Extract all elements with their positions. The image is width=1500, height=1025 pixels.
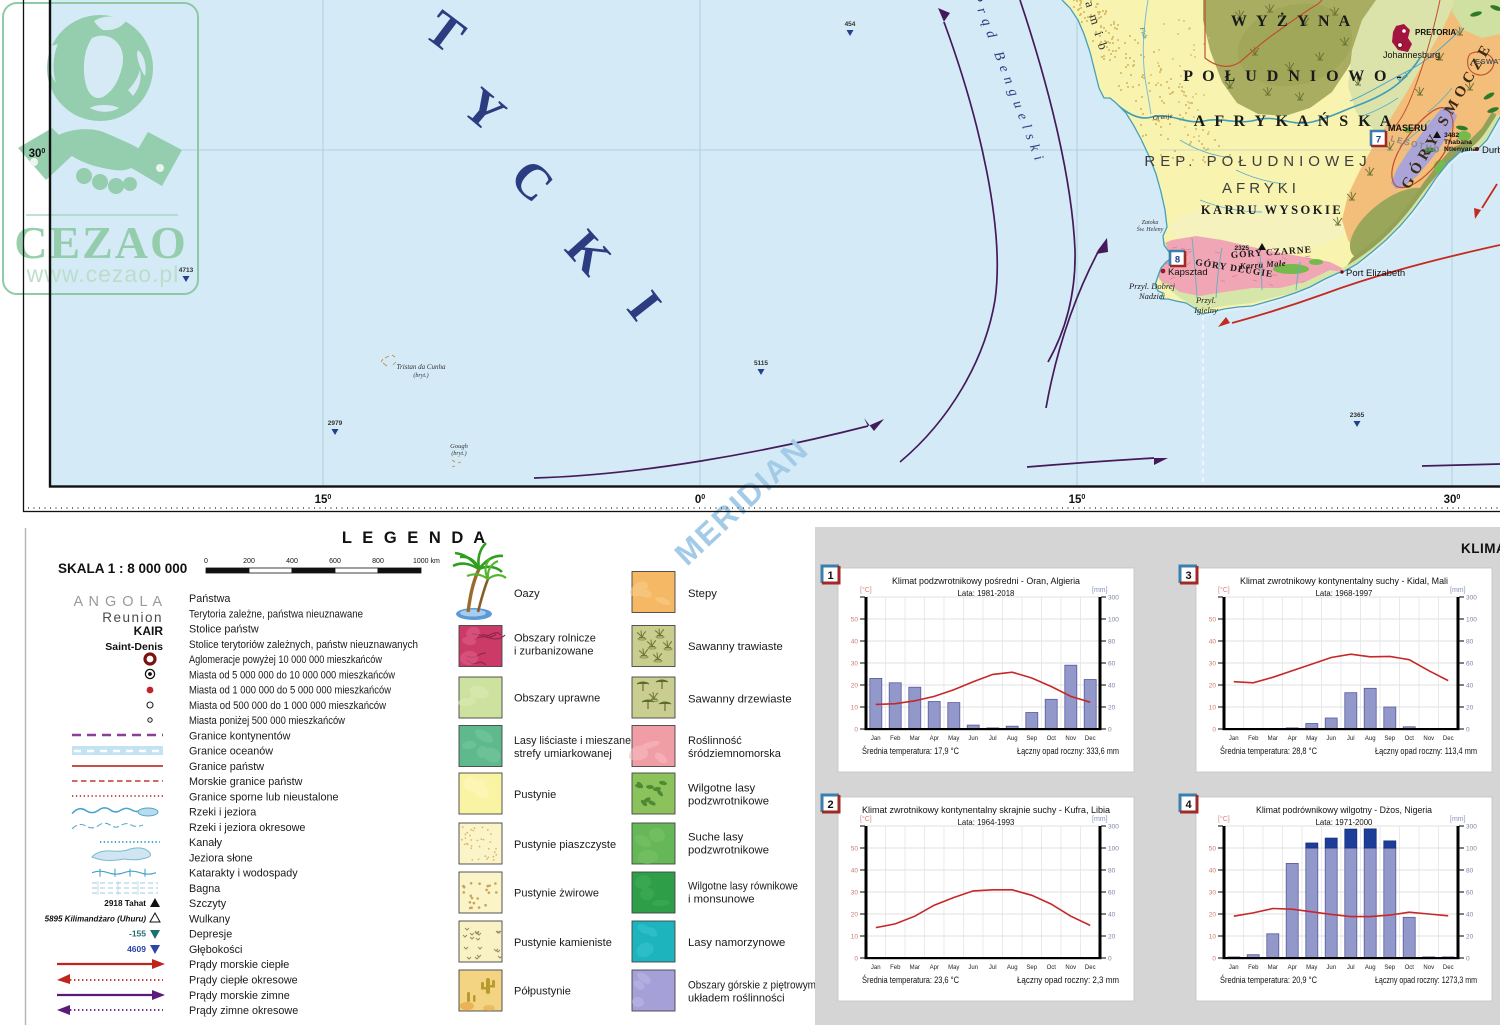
svg-text:Granice sporne lub nieustalone: Granice sporne lub nieustalone: [189, 791, 338, 803]
svg-text:Kapsztad: Kapsztad: [1168, 267, 1208, 278]
svg-text:Mar: Mar: [1268, 965, 1278, 971]
svg-text:0: 0: [854, 956, 858, 963]
svg-text:Rzeki i jeziora okresowe: Rzeki i jeziora okresowe: [189, 822, 305, 834]
svg-text:30: 30: [851, 661, 859, 668]
svg-text:60: 60: [1108, 890, 1116, 897]
svg-text:Obszary górskie z piętrowym: Obszary górskie z piętrowym: [688, 980, 816, 992]
svg-text:100: 100: [1466, 617, 1477, 624]
svg-text:May: May: [948, 736, 959, 742]
svg-text:Johannesburg: Johannesburg: [1383, 50, 1440, 60]
svg-text:Łączny opad roczny: 113,4 mm: Łączny opad roczny: 113,4 mm: [1375, 746, 1477, 756]
svg-text:SKALA 1 : 8 000 000: SKALA 1 : 8 000 000: [58, 561, 187, 576]
svg-text:4: 4: [1185, 799, 1192, 811]
svg-text:Średnia temperatura: 20,9 °C: Średnia temperatura: 20,9 °C: [1220, 974, 1317, 985]
svg-text:50: 50: [851, 846, 859, 853]
svg-text:Roślinność: Roślinność: [688, 735, 742, 747]
svg-text:Sawanny trawiaste: Sawanny trawiaste: [688, 641, 783, 653]
svg-text:300: 300: [1466, 824, 1477, 831]
svg-text:Klimat podzwrotnikowy pośredni: Klimat podzwrotnikowy pośredni - Oran, A…: [892, 576, 1081, 586]
svg-text:Granice kontynentów: Granice kontynentów: [189, 730, 291, 742]
svg-text:300: 300: [1108, 824, 1119, 831]
svg-text:Prądy morskie ciepłe: Prądy morskie ciepłe: [189, 959, 289, 971]
svg-text:454: 454: [845, 21, 856, 28]
svg-text:Zatoka: Zatoka: [1142, 220, 1159, 226]
svg-text:[°C]: [°C]: [1218, 586, 1230, 594]
svg-text:Klimat zwrotnikowy kontynental: Klimat zwrotnikowy kontynentalny suchy -…: [1240, 576, 1448, 586]
svg-text:Łączny opad roczny: 2,3 mm: Łączny opad roczny: 2,3 mm: [1017, 975, 1119, 985]
svg-text:Sep: Sep: [1026, 965, 1037, 971]
svg-text:Katarakty i wodospady: Katarakty i wodospady: [189, 868, 298, 880]
svg-text:Sep: Sep: [1384, 965, 1395, 971]
svg-text:Jul: Jul: [1347, 736, 1355, 742]
svg-text:Św. Heleny: Św. Heleny: [1137, 225, 1164, 233]
svg-text:Sep: Sep: [1026, 736, 1037, 742]
svg-text:-155: -155: [129, 929, 146, 939]
svg-text:Stolice terytoriów zależnych,: Stolice terytoriów zależnych, państw nie…: [189, 639, 418, 651]
svg-text:Miasta od 1 000 000 do 5 000 0: Miasta od 1 000 000 do 5 000 000 mieszka…: [189, 685, 391, 697]
svg-text:20: 20: [1466, 705, 1474, 712]
svg-text:[mm]: [mm]: [1092, 816, 1108, 823]
svg-text:20: 20: [851, 912, 859, 919]
svg-text:[mm]: [mm]: [1450, 816, 1466, 823]
svg-text:80: 80: [1466, 868, 1474, 875]
svg-text:Nov: Nov: [1423, 965, 1434, 971]
svg-text:4609: 4609: [127, 944, 146, 954]
svg-text:0: 0: [1466, 727, 1470, 734]
svg-text:300: 300: [1466, 595, 1477, 602]
svg-text:800: 800: [372, 558, 384, 565]
svg-text:20: 20: [851, 683, 859, 690]
svg-text:Średnia temperatura: 23,6 °C: Średnia temperatura: 23,6 °C: [862, 974, 959, 985]
svg-text:Oct: Oct: [1405, 965, 1415, 971]
svg-text:Mar: Mar: [910, 736, 920, 742]
svg-text:20: 20: [1108, 705, 1116, 712]
svg-text:Półpustynie: Półpustynie: [514, 986, 571, 998]
svg-text:40: 40: [851, 639, 859, 646]
svg-text:May: May: [1306, 736, 1317, 742]
svg-text:i monsunowe: i monsunowe: [688, 894, 755, 906]
svg-text:Stepy: Stepy: [688, 588, 717, 600]
svg-text:KARRU WYSOKIE: KARRU WYSOKIE: [1201, 203, 1343, 217]
svg-text:Aug: Aug: [1365, 736, 1376, 742]
svg-text:podzwrotnikowe: podzwrotnikowe: [688, 845, 769, 857]
svg-text:MASERU: MASERU: [1388, 123, 1427, 133]
svg-text:Rzeki i jeziora: Rzeki i jeziora: [189, 807, 256, 819]
svg-text:Przyl. Dobrej: Przyl. Dobrej: [1128, 281, 1176, 291]
svg-text:Aglomeracje powyżej 10 000 000: Aglomeracje powyżej 10 000 000 mieszkańc…: [189, 654, 382, 666]
svg-text:[°C]: [°C]: [1218, 815, 1230, 823]
svg-text:10: 10: [851, 705, 859, 712]
svg-text:AFRYKI: AFRYKI: [1222, 180, 1300, 197]
svg-text:Tristan da Cunha: Tristan da Cunha: [396, 363, 446, 371]
svg-text:4713: 4713: [179, 267, 194, 274]
svg-text:(bryt.): (bryt.): [451, 450, 466, 457]
svg-text:Aug: Aug: [1007, 736, 1018, 742]
svg-text:300: 300: [1108, 595, 1119, 602]
svg-text:KLIMATOGRAMY: KLIMATOGRAMY: [1461, 541, 1500, 556]
svg-text:Morskie granice państw: Morskie granice państw: [189, 776, 303, 788]
svg-text:Jun: Jun: [1326, 965, 1336, 971]
svg-text:7: 7: [1376, 135, 1381, 146]
svg-text:Dec: Dec: [1085, 965, 1096, 971]
svg-text:Durban: Durban: [1482, 145, 1500, 156]
svg-text:2325: 2325: [1235, 245, 1250, 252]
svg-text:Saint-Denis: Saint-Denis: [105, 641, 163, 653]
svg-text:Nov: Nov: [1065, 736, 1076, 742]
svg-text:0: 0: [1108, 956, 1112, 963]
svg-text:8: 8: [1175, 255, 1180, 266]
svg-text:Jul: Jul: [989, 965, 997, 971]
svg-text:Apr: Apr: [1288, 965, 1297, 971]
svg-text:Sep: Sep: [1384, 736, 1395, 742]
svg-text:Feb: Feb: [890, 736, 901, 742]
svg-text:3482: 3482: [1444, 132, 1459, 139]
svg-text:Nov: Nov: [1065, 965, 1076, 971]
svg-text:L E G E N D A: L E G E N D A: [342, 529, 488, 547]
svg-text:Reunion: Reunion: [102, 610, 163, 625]
svg-text:5115: 5115: [754, 360, 768, 367]
svg-text:20: 20: [1209, 683, 1217, 690]
svg-text:Mar: Mar: [910, 965, 920, 971]
svg-text:Lasy namorzynowe: Lasy namorzynowe: [688, 937, 785, 949]
svg-text:REP. POŁUDNIOWEJ: REP. POŁUDNIOWEJ: [1144, 153, 1371, 170]
svg-text:Sawanny drzewiaste: Sawanny drzewiaste: [688, 694, 792, 706]
svg-text:50: 50: [1209, 617, 1217, 624]
svg-text:PRETORIA: PRETORIA: [1415, 28, 1456, 37]
svg-text:www.cezao.pl: www.cezao.pl: [26, 261, 180, 287]
svg-text:Wilgotne lasy równikowe: Wilgotne lasy równikowe: [688, 881, 798, 893]
svg-text:Szczyty: Szczyty: [189, 898, 227, 910]
svg-text:Państwa: Państwa: [189, 593, 230, 605]
svg-text:Dec: Dec: [1443, 965, 1454, 971]
svg-text:2979: 2979: [328, 420, 343, 427]
svg-text:100: 100: [1466, 846, 1477, 853]
svg-text:Lasy liściaste i mieszane: Lasy liściaste i mieszane: [514, 735, 631, 747]
svg-text:3: 3: [1185, 570, 1191, 582]
svg-text:Jun: Jun: [968, 736, 978, 742]
svg-text:KAIR: KAIR: [134, 624, 164, 638]
svg-text:Jan: Jan: [871, 736, 881, 742]
svg-text:Oazy: Oazy: [514, 588, 540, 600]
svg-text:Suche lasy: Suche lasy: [688, 832, 744, 844]
svg-text:0: 0: [854, 727, 858, 734]
svg-text:50: 50: [851, 617, 859, 624]
svg-text:50: 50: [1209, 846, 1217, 853]
svg-text:2918 Tahat: 2918 Tahat: [104, 899, 146, 908]
svg-text:40: 40: [851, 868, 859, 875]
svg-text:Feb: Feb: [1248, 736, 1259, 742]
svg-text:Feb: Feb: [890, 965, 901, 971]
svg-text:80: 80: [1108, 639, 1116, 646]
svg-text:Jan: Jan: [1229, 965, 1239, 971]
svg-text:Igielny: Igielny: [1193, 305, 1218, 315]
svg-text:Depresje: Depresje: [189, 929, 232, 941]
svg-text:80: 80: [1108, 868, 1116, 875]
svg-text:0: 0: [1212, 956, 1216, 963]
svg-text:40: 40: [1108, 912, 1116, 919]
svg-text:400: 400: [286, 558, 298, 565]
svg-text:[mm]: [mm]: [1092, 587, 1108, 594]
svg-text:Prądy morskie zimne: Prądy morskie zimne: [189, 990, 290, 1002]
svg-text:Jul: Jul: [1347, 965, 1355, 971]
svg-text:Port Elizabeth: Port Elizabeth: [1346, 268, 1405, 279]
svg-text:20: 20: [1108, 934, 1116, 941]
svg-text:Miasta od 5 000 000 do 10 000: Miasta od 5 000 000 do 10 000 000 mieszk…: [189, 669, 395, 681]
svg-text:100: 100: [1108, 846, 1119, 853]
svg-text:Pustynie kamieniste: Pustynie kamieniste: [514, 937, 612, 949]
svg-text:Klimat podrównikowy wilgotny -: Klimat podrównikowy wilgotny - Dżos, Nig…: [1256, 805, 1433, 815]
svg-text:Oct: Oct: [1047, 965, 1057, 971]
svg-text:[°C]: [°C]: [860, 815, 872, 823]
svg-text:Obszary uprawne: Obszary uprawne: [514, 693, 600, 705]
svg-text:Obszary rolnicze: Obszary rolnicze: [514, 633, 596, 645]
svg-text:40: 40: [1466, 683, 1474, 690]
svg-text:40: 40: [1466, 912, 1474, 919]
svg-text:Aug: Aug: [1007, 965, 1018, 971]
svg-text:Łączny opad roczny: 333,6 mm: Łączny opad roczny: 333,6 mm: [1017, 746, 1119, 756]
svg-text:Aug: Aug: [1365, 965, 1376, 971]
svg-text:W Y Ż Y N A: W Y Ż Y N A: [1231, 11, 1353, 30]
svg-text:0: 0: [204, 558, 208, 565]
svg-text:Terytoria zależne, państwa nie: Terytoria zależne, państwa nieuznawane: [189, 608, 363, 620]
svg-text:1000 km: 1000 km: [413, 558, 440, 565]
svg-text:30: 30: [1209, 661, 1217, 668]
svg-text:Prądy ciepłe okresowe: Prądy ciepłe okresowe: [189, 975, 298, 987]
svg-text:Nov: Nov: [1423, 736, 1434, 742]
svg-text:2365: 2365: [1350, 412, 1365, 419]
svg-text:30: 30: [851, 890, 859, 897]
svg-text:Jun: Jun: [968, 965, 978, 971]
svg-text:1: 1: [827, 570, 833, 582]
svg-text:80: 80: [1466, 639, 1474, 646]
svg-text:40: 40: [1209, 639, 1217, 646]
svg-text:P O Ł U D N I O W O -: P O Ł U D N I O W O -: [1183, 68, 1405, 85]
svg-text:strefy umiarkowanej: strefy umiarkowanej: [514, 748, 612, 760]
svg-text:Jun: Jun: [1326, 736, 1336, 742]
svg-text:Średnia temperatura: 28,8 °C: Średnia temperatura: 28,8 °C: [1220, 745, 1317, 756]
svg-text:[°C]: [°C]: [860, 586, 872, 594]
svg-text:0: 0: [1212, 727, 1216, 734]
svg-text:Jeziora słone: Jeziora słone: [189, 852, 253, 864]
svg-text:May: May: [1306, 965, 1317, 971]
svg-text:Dec: Dec: [1443, 736, 1454, 742]
svg-text:20: 20: [1209, 912, 1217, 919]
svg-text:(bryt.): (bryt.): [413, 372, 428, 379]
svg-text:Apr: Apr: [1288, 736, 1297, 742]
svg-text:Wilgotne lasy: Wilgotne lasy: [688, 783, 756, 795]
svg-text:30: 30: [1209, 890, 1217, 897]
svg-text:Jan: Jan: [871, 965, 881, 971]
svg-text:Przyl.: Przyl.: [1195, 295, 1216, 305]
svg-text:60: 60: [1108, 661, 1116, 668]
svg-text:Miasta od 500 000 do 1 000 00: Miasta od 500 000 do 1 000 000 mieszkańc…: [189, 700, 386, 712]
svg-text:Mar: Mar: [1268, 736, 1278, 742]
svg-text:40: 40: [1209, 868, 1217, 875]
svg-text:Feb: Feb: [1248, 965, 1259, 971]
svg-text:Gough: Gough: [450, 443, 468, 450]
svg-text:Apr: Apr: [930, 736, 939, 742]
svg-text:śródziemnomorska: śródziemnomorska: [688, 748, 782, 760]
svg-text:Miasta poniżej 500 000 mieszka: Miasta poniżej 500 000 mieszkańców: [189, 715, 345, 727]
svg-text:5895 Kilimandżaro (Uhuru): 5895 Kilimandżaro (Uhuru): [45, 914, 147, 923]
svg-text:podzwrotnikowe: podzwrotnikowe: [688, 796, 769, 808]
svg-text:Stolice państw: Stolice państw: [189, 624, 259, 636]
svg-text:Oct: Oct: [1047, 736, 1057, 742]
svg-text:10: 10: [851, 934, 859, 941]
svg-text:10: 10: [1209, 705, 1217, 712]
svg-text:60: 60: [1466, 890, 1474, 897]
svg-text:A F R Y K A Ń S K A: A F R Y K A Ń S K A: [1194, 111, 1395, 130]
svg-text:Oct: Oct: [1405, 736, 1415, 742]
svg-text:Thabana: Thabana: [1444, 139, 1472, 146]
svg-text:Łączny opad roczny: 1273,3 mm: Łączny opad roczny: 1273,3 mm: [1375, 975, 1477, 985]
svg-text:Granice państw: Granice państw: [189, 761, 264, 773]
svg-text:40: 40: [1108, 683, 1116, 690]
svg-text:200: 200: [243, 558, 255, 565]
svg-text:Apr: Apr: [930, 965, 939, 971]
svg-text:ESWATINI: ESWATINI: [1475, 57, 1500, 66]
svg-text:Jan: Jan: [1229, 736, 1239, 742]
svg-text:Dec: Dec: [1085, 736, 1096, 742]
svg-text:Ntlenyana: Ntlenyana: [1444, 146, 1477, 153]
svg-text:Klimat zwrotnikowy kontynental: Klimat zwrotnikowy kontynentalny skrajni…: [862, 805, 1111, 815]
svg-text:2: 2: [827, 799, 833, 811]
svg-text:Nadziei: Nadziei: [1138, 291, 1166, 301]
svg-text:Pustynie żwirowe: Pustynie żwirowe: [514, 888, 599, 900]
svg-text:układem roślinności: układem roślinności: [688, 993, 785, 1005]
svg-text:100: 100: [1108, 617, 1119, 624]
svg-text:Średnia temperatura: 17,9 °C: Średnia temperatura: 17,9 °C: [862, 745, 959, 756]
svg-text:i zurbanizowane: i zurbanizowane: [514, 646, 594, 658]
svg-text:10: 10: [1209, 934, 1217, 941]
svg-text:0: 0: [1466, 956, 1470, 963]
svg-text:Jul: Jul: [989, 736, 997, 742]
svg-text:Pustynie: Pustynie: [514, 789, 556, 801]
svg-text:Wulkany: Wulkany: [189, 913, 231, 925]
svg-text:60: 60: [1466, 661, 1474, 668]
svg-text:600: 600: [329, 558, 341, 565]
svg-text:A N G O L A: A N G O L A: [74, 594, 163, 610]
svg-text:Pustynie piaszczyste: Pustynie piaszczyste: [514, 839, 616, 851]
svg-text:Bagna: Bagna: [189, 883, 220, 895]
svg-text:Głębokości: Głębokości: [189, 944, 242, 956]
svg-text:20: 20: [1466, 934, 1474, 941]
svg-text:Granice oceanów: Granice oceanów: [189, 746, 273, 758]
svg-text:Prądy zimne okresowe: Prądy zimne okresowe: [189, 1005, 298, 1017]
svg-text:0: 0: [1108, 727, 1112, 734]
svg-text:May: May: [948, 965, 959, 971]
svg-text:[mm]: [mm]: [1450, 587, 1466, 594]
svg-text:Kanały: Kanały: [189, 837, 223, 849]
